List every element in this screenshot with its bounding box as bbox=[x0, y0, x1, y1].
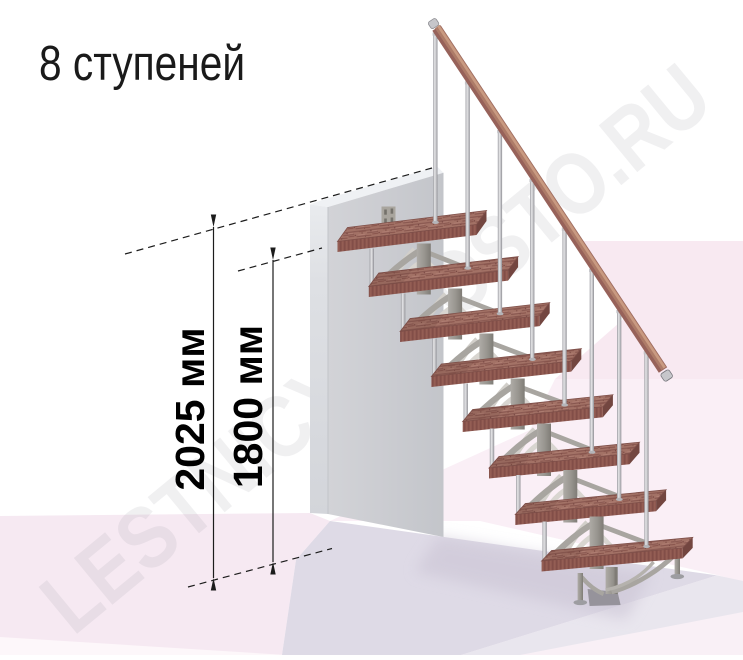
svg-text:1800 мм: 1800 мм bbox=[225, 325, 271, 488]
svg-text:8 ступеней: 8 ступеней bbox=[39, 35, 245, 90]
svg-text:2025 мм: 2025 мм bbox=[167, 327, 213, 490]
